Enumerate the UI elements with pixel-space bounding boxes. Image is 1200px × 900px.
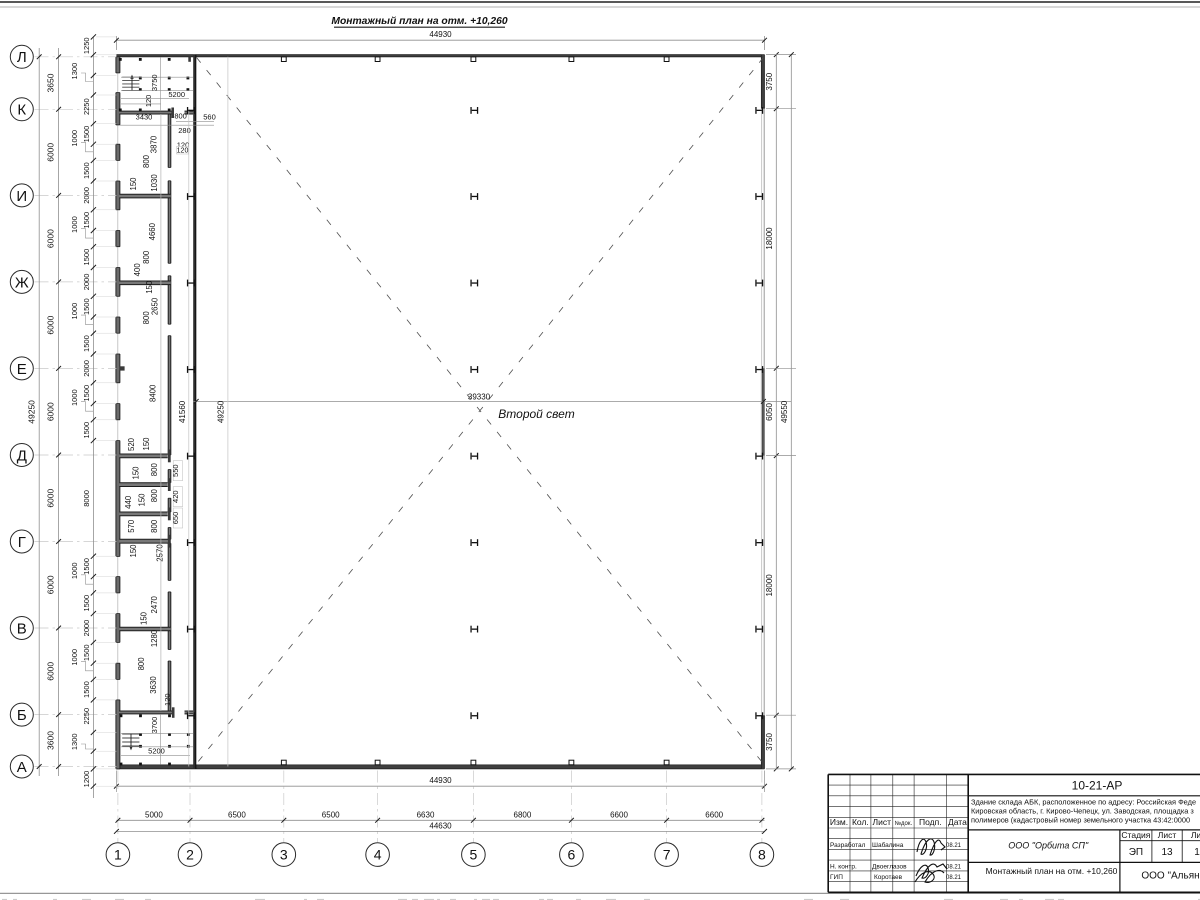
svg-text:150: 150 — [137, 493, 146, 507]
svg-text:150: 150 — [145, 280, 154, 294]
svg-text:150: 150 — [139, 611, 148, 625]
svg-text:150: 150 — [131, 466, 140, 480]
svg-text:Г: Г — [18, 534, 26, 551]
svg-text:6500: 6500 — [228, 810, 246, 819]
svg-text:800: 800 — [137, 657, 146, 671]
svg-text:120: 120 — [144, 95, 153, 108]
svg-text:5: 5 — [470, 847, 478, 863]
svg-text:800: 800 — [150, 463, 159, 477]
svg-text:1280: 1280 — [150, 629, 159, 647]
svg-text:4: 4 — [374, 847, 382, 863]
svg-text:49250: 49250 — [217, 400, 226, 423]
svg-text:44930: 44930 — [429, 776, 452, 785]
svg-text:1500: 1500 — [82, 249, 91, 266]
svg-text:3430: 3430 — [136, 113, 153, 122]
svg-text:5000: 5000 — [145, 810, 163, 819]
svg-text:Двоеглазов: Двоеглазов — [872, 863, 907, 870]
svg-text:6050: 6050 — [765, 403, 774, 421]
svg-text:800: 800 — [150, 489, 159, 503]
svg-text:1000: 1000 — [70, 216, 79, 233]
svg-text:1500: 1500 — [82, 558, 91, 575]
svg-text:400: 400 — [133, 263, 142, 277]
svg-text:Разработал: Разработал — [830, 841, 866, 849]
svg-text:44930: 44930 — [429, 30, 452, 39]
svg-text:Л: Л — [17, 49, 27, 66]
svg-text:Ли: Ли — [1191, 830, 1200, 840]
svg-text:6000: 6000 — [46, 488, 56, 507]
svg-text:1: 1 — [1194, 847, 1200, 858]
svg-text:Шабалина: Шабалина — [872, 841, 904, 849]
svg-text:18000: 18000 — [765, 574, 774, 597]
svg-text:1500: 1500 — [82, 422, 91, 439]
svg-text:Коротаев: Коротаев — [874, 874, 903, 881]
svg-text:1500: 1500 — [82, 212, 91, 229]
svg-text:49250: 49250 — [26, 400, 36, 424]
svg-text:08.21: 08.21 — [946, 865, 962, 871]
svg-text:1500: 1500 — [82, 126, 91, 143]
svg-text:1300: 1300 — [70, 733, 79, 750]
svg-text:полимеров (кадастровый номер з: полимеров (кадастровый номер земельного … — [971, 816, 1190, 825]
svg-text:6000: 6000 — [46, 662, 56, 681]
svg-text:1500: 1500 — [82, 681, 91, 698]
svg-text:3: 3 — [280, 847, 288, 863]
svg-text:И: И — [16, 188, 27, 205]
svg-text:520: 520 — [127, 437, 136, 451]
svg-text:800: 800 — [174, 112, 187, 121]
svg-text:Н. контр.: Н. контр. — [830, 863, 857, 870]
svg-text:1000: 1000 — [70, 130, 79, 147]
svg-text:ООО "Альянс: ООО "Альянс — [1141, 871, 1200, 882]
svg-text:Лист: Лист — [873, 817, 892, 827]
svg-text:150: 150 — [142, 437, 151, 451]
svg-text:Дата: Дата — [948, 817, 967, 827]
svg-text:А: А — [17, 759, 27, 776]
svg-text:2570: 2570 — [156, 544, 165, 562]
svg-text:Стадия: Стадия — [1121, 830, 1150, 840]
svg-text:800: 800 — [142, 311, 151, 325]
svg-text:1000: 1000 — [70, 303, 79, 320]
svg-text:Монтажный план на отм. +10,260: Монтажный план на отм. +10,260 — [331, 16, 507, 27]
svg-text:7: 7 — [663, 847, 671, 863]
svg-text:08.21: 08.21 — [946, 843, 962, 849]
svg-text:1250: 1250 — [82, 37, 91, 54]
svg-text:Б: Б — [17, 707, 27, 724]
svg-text:6: 6 — [568, 847, 576, 863]
svg-text:№док.: №док. — [895, 820, 913, 827]
svg-text:2: 2 — [186, 847, 194, 863]
svg-text:ГИП: ГИП — [830, 874, 843, 881]
svg-text:13: 13 — [1161, 847, 1173, 858]
svg-text:1500: 1500 — [82, 298, 91, 315]
svg-text:2250: 2250 — [82, 98, 91, 115]
svg-text:1200: 1200 — [82, 771, 91, 788]
svg-text:6630: 6630 — [417, 810, 435, 819]
svg-text:650: 650 — [171, 512, 180, 525]
svg-text:Д: Д — [17, 447, 27, 464]
svg-text:1000: 1000 — [70, 562, 79, 579]
svg-text:6600: 6600 — [610, 810, 628, 819]
svg-text:ООО "Орбита СП": ООО "Орбита СП" — [1008, 841, 1089, 851]
svg-text:3750: 3750 — [150, 74, 159, 91]
svg-text:1030: 1030 — [150, 174, 159, 192]
svg-text:6000: 6000 — [46, 402, 56, 421]
svg-text:2000: 2000 — [82, 360, 91, 377]
svg-text:3870: 3870 — [149, 135, 158, 153]
svg-text:Изм.: Изм. — [830, 817, 848, 827]
svg-text:Второй свет: Второй свет — [498, 407, 574, 421]
svg-text:41560: 41560 — [178, 400, 187, 423]
svg-text:6000: 6000 — [46, 575, 56, 594]
svg-text:Здание склада АБК, расположенн: Здание склада АБК, расположенное по адре… — [971, 798, 1196, 807]
svg-text:В: В — [17, 620, 27, 637]
svg-text:3600: 3600 — [46, 731, 56, 750]
svg-text:2250: 2250 — [82, 708, 91, 725]
svg-text:10-21-АР: 10-21-АР — [1072, 779, 1123, 793]
svg-text:Монтажный план на отм. +10,260: Монтажный план на отм. +10,260 — [986, 866, 1118, 876]
svg-text:4660: 4660 — [148, 222, 157, 240]
svg-text:ЭП: ЭП — [1129, 847, 1143, 858]
svg-text:550: 550 — [171, 464, 180, 477]
svg-text:1000: 1000 — [70, 389, 79, 406]
svg-text:39330: 39330 — [468, 393, 491, 402]
svg-text:570: 570 — [127, 519, 136, 533]
svg-text:6500: 6500 — [322, 810, 340, 819]
svg-text:150: 150 — [129, 544, 138, 558]
svg-text:2470: 2470 — [150, 595, 159, 613]
svg-text:120: 120 — [163, 693, 172, 706]
svg-text:800: 800 — [150, 519, 159, 533]
svg-text:К: К — [17, 102, 26, 119]
svg-text:150: 150 — [129, 177, 138, 191]
svg-text:Е: Е — [17, 361, 27, 378]
svg-text:1500: 1500 — [82, 385, 91, 402]
svg-text:1000: 1000 — [70, 649, 79, 666]
svg-text:Лист: Лист — [1158, 830, 1177, 840]
svg-text:8000: 8000 — [82, 490, 91, 507]
svg-text:08.21: 08.21 — [946, 875, 962, 881]
svg-text:800: 800 — [142, 154, 151, 168]
svg-text:6600: 6600 — [705, 810, 723, 819]
svg-text:44630: 44630 — [429, 821, 452, 830]
svg-text:3630: 3630 — [149, 676, 158, 694]
svg-text:6000: 6000 — [46, 143, 56, 162]
svg-text:1500: 1500 — [82, 644, 91, 661]
svg-text:2000: 2000 — [82, 187, 91, 204]
svg-text:1500: 1500 — [82, 162, 91, 179]
svg-text:2000: 2000 — [82, 620, 91, 637]
svg-text:440: 440 — [124, 495, 133, 509]
svg-text:560: 560 — [203, 113, 216, 122]
svg-text:1: 1 — [114, 847, 122, 863]
svg-text:Подп.: Подп. — [919, 817, 942, 827]
svg-text:3750: 3750 — [765, 72, 774, 90]
svg-text:3750: 3750 — [765, 733, 774, 751]
svg-text:6000: 6000 — [46, 315, 56, 334]
svg-text:49550: 49550 — [780, 400, 789, 423]
svg-text:2650: 2650 — [151, 297, 160, 315]
svg-text:6800: 6800 — [514, 810, 532, 819]
svg-text:18000: 18000 — [765, 227, 774, 250]
svg-text:420: 420 — [171, 490, 180, 503]
svg-text:5200: 5200 — [148, 747, 165, 756]
svg-text:3700: 3700 — [150, 717, 159, 734]
svg-text:3650: 3650 — [46, 73, 56, 92]
svg-text:120: 120 — [177, 147, 189, 154]
svg-text:1500: 1500 — [82, 335, 91, 352]
svg-text:800: 800 — [142, 250, 151, 264]
svg-text:Ж: Ж — [15, 274, 29, 291]
svg-text:6000: 6000 — [46, 229, 56, 248]
svg-text:8400: 8400 — [149, 384, 158, 402]
svg-text:1500: 1500 — [82, 595, 91, 612]
svg-text:1300: 1300 — [70, 63, 79, 80]
svg-text:Кировская область, г. Кирово-Ч: Кировская область, г. Кирово-Чепецк, ул.… — [971, 807, 1194, 816]
svg-text:Кол.: Кол. — [852, 817, 869, 827]
svg-text:8: 8 — [758, 847, 766, 863]
svg-text:2000: 2000 — [82, 274, 91, 291]
svg-text:5200: 5200 — [168, 90, 185, 99]
